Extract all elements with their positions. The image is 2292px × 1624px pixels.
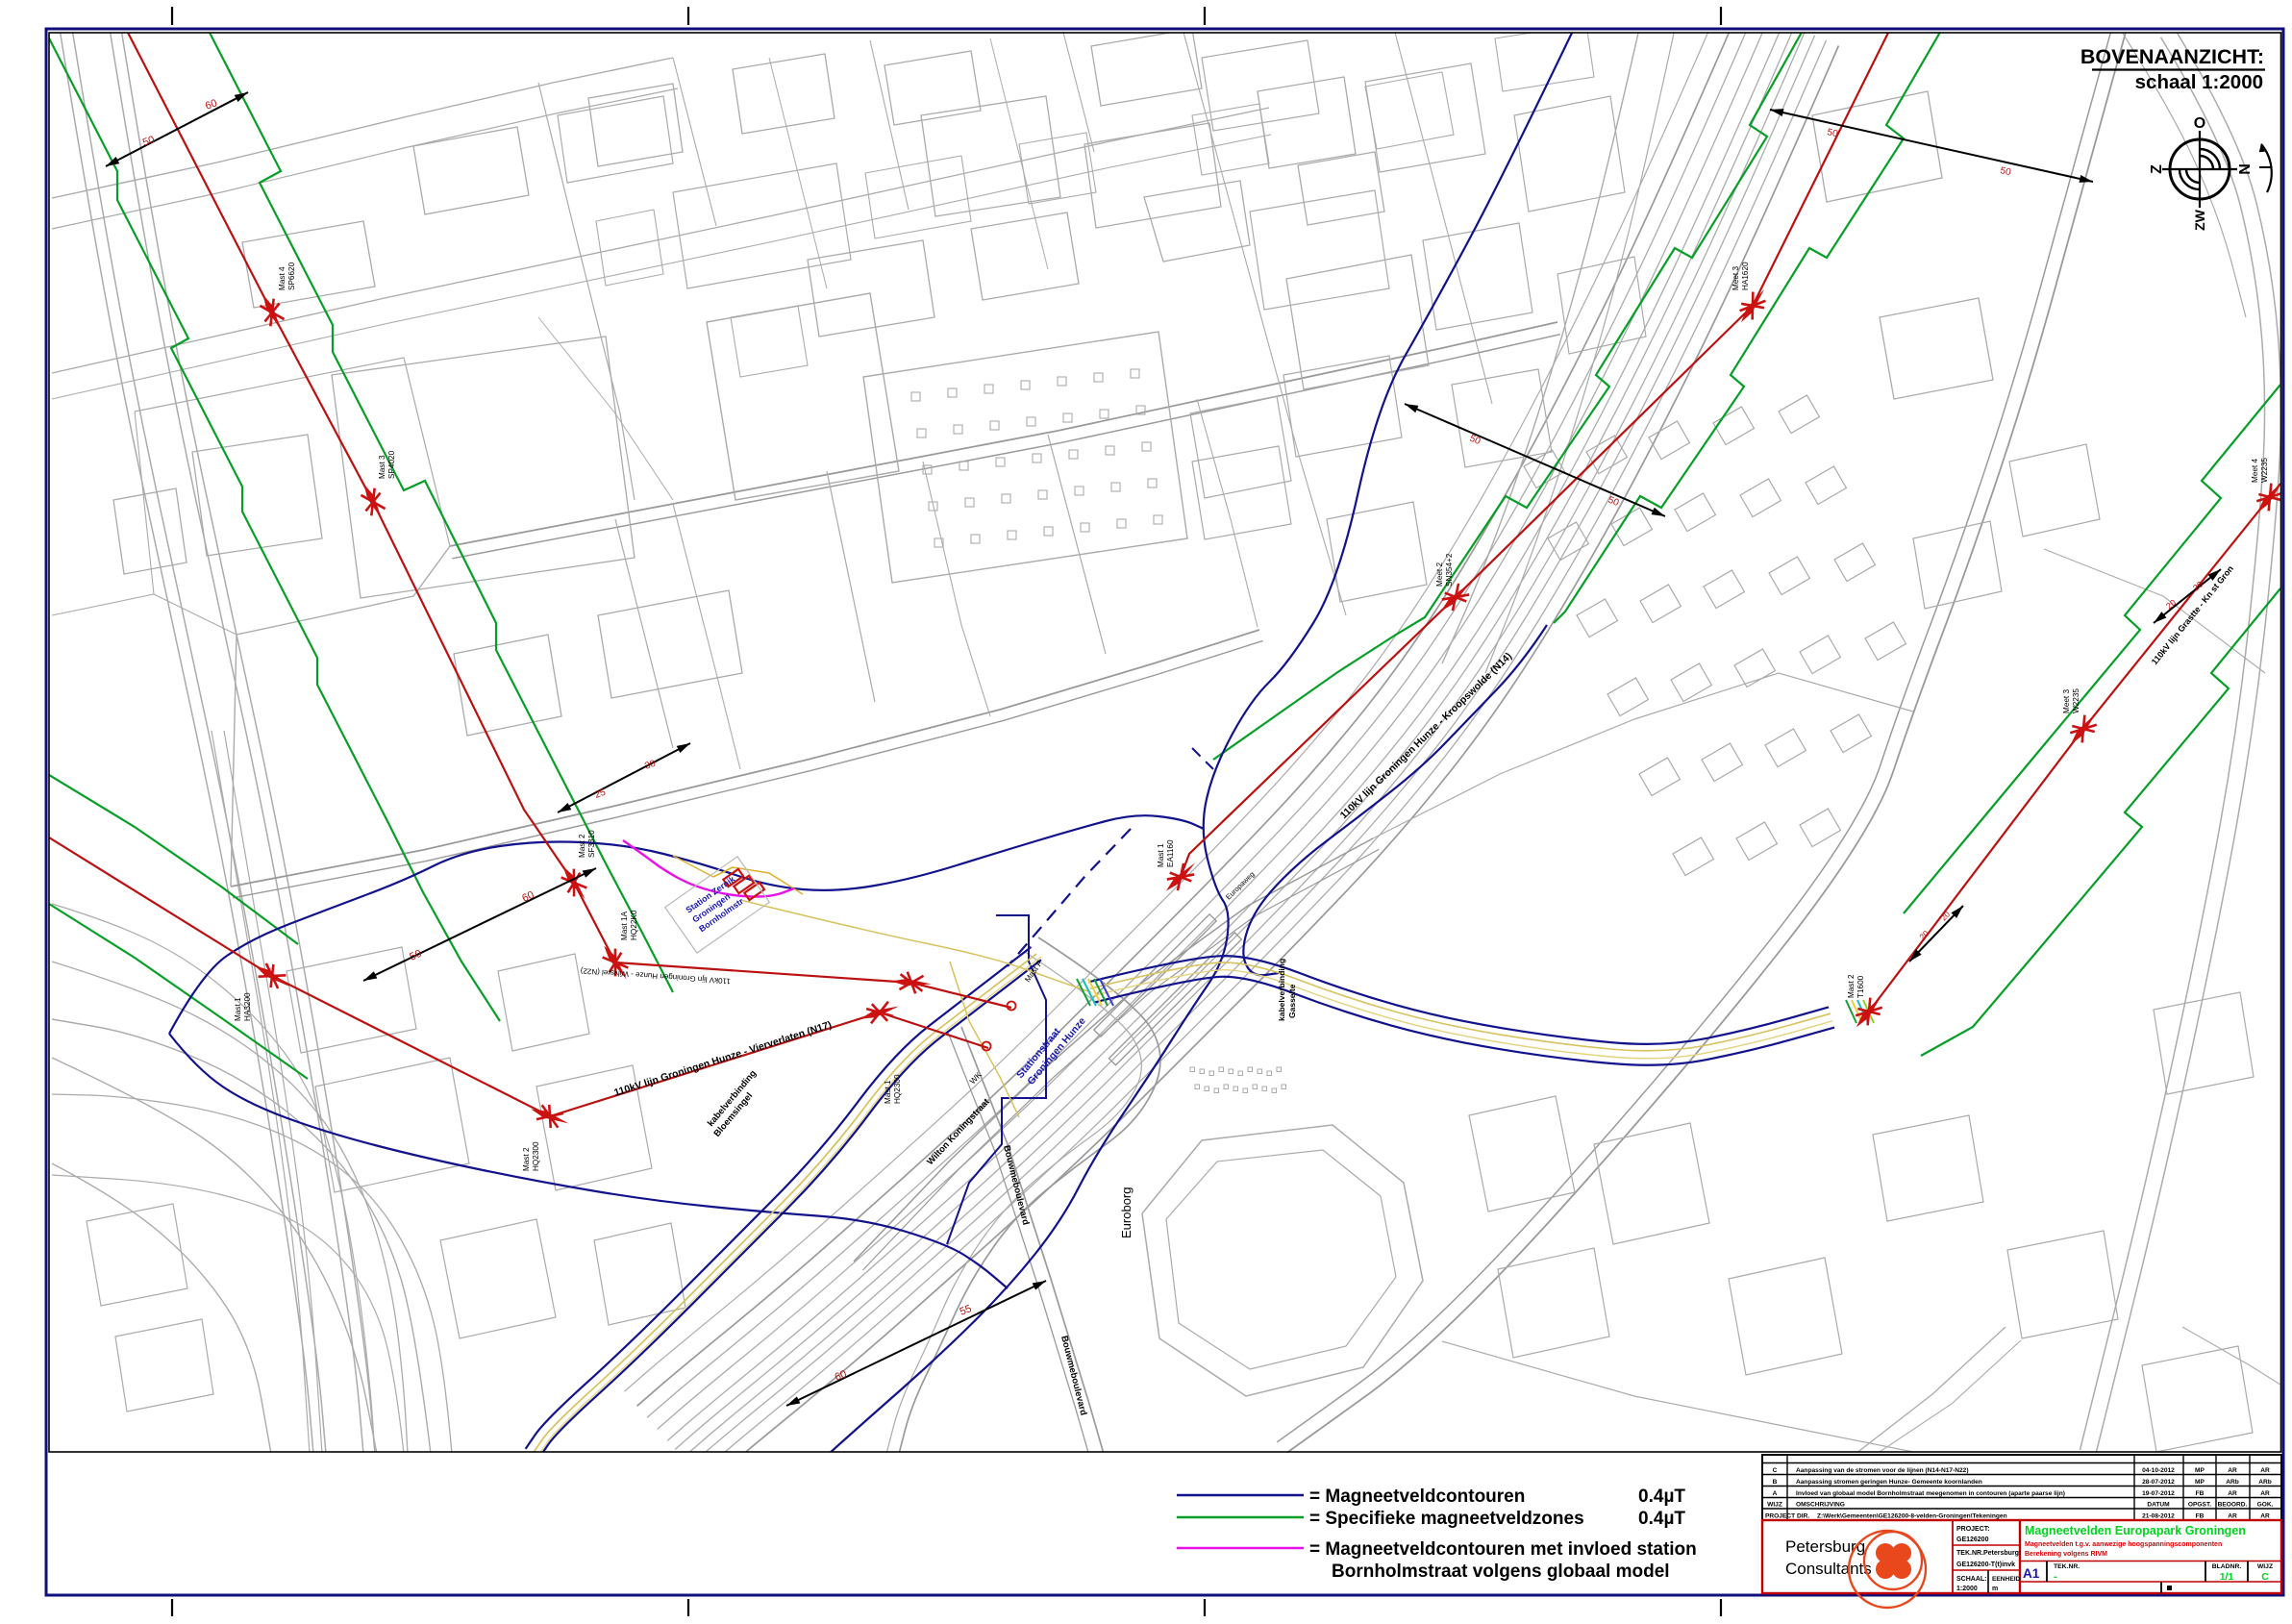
svg-text:Mast 1: Mast 1 xyxy=(884,1080,892,1104)
svg-text:SN354+2: SN354+2 xyxy=(1445,553,1454,587)
svg-text:Mast 2: Mast 2 xyxy=(1847,974,1856,998)
svg-text:W2235: W2235 xyxy=(2260,458,2269,483)
svg-text:1/1: 1/1 xyxy=(2220,1571,2234,1583)
svg-text:AR: AR xyxy=(2228,1513,2237,1520)
svg-text:m: m xyxy=(1992,1586,1998,1592)
svg-text:AR: AR xyxy=(2260,1467,2270,1474)
svg-text:C: C xyxy=(1773,1467,1778,1474)
svg-text:EA1160: EA1160 xyxy=(1166,839,1175,867)
svg-text:= Magneetveldcontouren met inv: = Magneetveldcontouren met invloed stati… xyxy=(1309,1539,1697,1560)
svg-text:WIJZ: WIJZ xyxy=(2257,1563,2273,1570)
svg-text:0.4µT: 0.4µT xyxy=(1638,1509,1685,1529)
svg-text:Mast 2: Mast 2 xyxy=(578,834,586,858)
svg-text:DATUM: DATUM xyxy=(2147,1502,2170,1509)
svg-text:AR: AR xyxy=(2228,1490,2237,1497)
svg-text:HQ2300: HQ2300 xyxy=(532,1141,540,1171)
svg-text:-: - xyxy=(2054,1571,2057,1583)
svg-text:GE126200-T(t)invk: GE126200-T(t)invk xyxy=(1956,1562,2015,1568)
svg-text:W2235: W2235 xyxy=(2072,688,2080,713)
svg-text:Magneetvelden Europapark Groni: Magneetvelden Europapark Groningen xyxy=(2025,1524,2246,1537)
svg-text:SP4020: SP4020 xyxy=(387,450,396,479)
svg-text:TEK.NR.Petersburg:: TEK.NR.Petersburg: xyxy=(1956,1550,2021,1557)
svg-text:Mast 1: Mast 1 xyxy=(1157,843,1165,867)
svg-text:Z: Z xyxy=(2149,164,2165,174)
svg-text:TEK.NR.: TEK.NR. xyxy=(2054,1563,2080,1570)
svg-text:AR: AR xyxy=(2260,1513,2270,1520)
svg-text:Mast 2: Mast 2 xyxy=(522,1147,531,1171)
svg-text:O: O xyxy=(2194,115,2205,132)
svg-text:GOK.: GOK. xyxy=(2257,1502,2274,1509)
svg-text:Invloed van globaal model Born: Invloed van globaal model Bornholmstraat… xyxy=(1796,1490,2065,1497)
svg-text:21-08-2012: 21-08-2012 xyxy=(2142,1513,2175,1520)
svg-text:Mast 1: Mast 1 xyxy=(234,997,242,1021)
svg-text:Meet 2: Meet 2 xyxy=(1435,562,1444,587)
svg-text:HQ2300: HQ2300 xyxy=(893,1074,902,1104)
svg-text:MP: MP xyxy=(2195,1467,2205,1474)
svg-text:0.4µT: 0.4µT xyxy=(1638,1487,1685,1507)
svg-text:ZW: ZW xyxy=(2192,209,2207,231)
svg-text:AR: AR xyxy=(2260,1490,2270,1497)
svg-text:= Specifieke magneetveldzones: = Specifieke magneetveldzones xyxy=(1309,1509,1584,1529)
svg-text:Mast 4: Mast 4 xyxy=(278,266,286,290)
svg-text:28-07-2012: 28-07-2012 xyxy=(2142,1479,2175,1486)
svg-text:N: N xyxy=(2237,163,2254,175)
svg-text:Meet 3: Meet 3 xyxy=(2062,689,2071,713)
svg-text:BEOORD.: BEOORD. xyxy=(2218,1502,2248,1509)
svg-text:FB: FB xyxy=(2196,1513,2205,1520)
svg-text:EENHEID: EENHEID xyxy=(1992,1576,2021,1583)
svg-text:Magneetvelden t.g.v. aanwezige: Magneetvelden t.g.v. aanwezige hoogspann… xyxy=(2025,1541,2222,1548)
svg-text:HA3200: HA3200 xyxy=(243,992,252,1021)
svg-text:PROJECT:: PROJECT: xyxy=(1956,1526,1990,1533)
svg-text:HA1620: HA1620 xyxy=(1741,262,1750,290)
svg-text:BLADNR.: BLADNR. xyxy=(2212,1563,2242,1570)
svg-text:T1600: T1600 xyxy=(1856,975,1865,998)
svg-text:Bornholmstraat volgens globaal: Bornholmstraat volgens globaal model xyxy=(1332,1562,1670,1582)
svg-text:ARb: ARb xyxy=(2258,1479,2272,1486)
svg-text:Mast 1A: Mast 1A xyxy=(620,911,629,940)
svg-text:SP6620: SP6620 xyxy=(287,262,296,290)
svg-text:19-07-2012: 19-07-2012 xyxy=(2142,1490,2175,1497)
svg-text:GE126200: GE126200 xyxy=(1956,1537,1989,1543)
svg-text:FB: FB xyxy=(2196,1490,2205,1497)
svg-text:Meet 4: Meet 4 xyxy=(2251,459,2259,483)
svg-text:Euroborg: Euroborg xyxy=(1119,1187,1134,1238)
svg-text:HQ22K0: HQ22K0 xyxy=(630,910,638,940)
svg-text:Aanpassing van de stromen voor: Aanpassing van de stromen voor de lijnen… xyxy=(1796,1467,1969,1474)
svg-text:SF3310: SF3310 xyxy=(587,830,596,858)
svg-text:Z:\Werk\Gemeenten\GE126200-8-v: Z:\Werk\Gemeenten\GE126200-8-velden-Gron… xyxy=(1817,1513,2007,1520)
svg-text:MP: MP xyxy=(2195,1479,2205,1486)
svg-text:PROJECT DIR.: PROJECT DIR. xyxy=(1765,1513,1809,1520)
svg-text:Berekening volgens RIVM: Berekening volgens RIVM xyxy=(2025,1551,2107,1558)
svg-text:B: B xyxy=(1773,1479,1778,1486)
svg-text:A1: A1 xyxy=(2023,1566,2040,1581)
svg-text:= Magneetveldcontouren: = Magneetveldcontouren xyxy=(1309,1487,1525,1507)
svg-text:kabelverbinding: kabelverbinding xyxy=(1277,959,1286,1021)
svg-text:Meet 3: Meet 3 xyxy=(1731,266,1740,290)
svg-text:C: C xyxy=(2261,1571,2269,1583)
svg-text:OMSCHRIJVING: OMSCHRIJVING xyxy=(1796,1502,1845,1509)
svg-text:schaal 1:2000: schaal 1:2000 xyxy=(2135,71,2263,93)
svg-text:1:2000: 1:2000 xyxy=(1956,1586,1978,1592)
svg-text:WIJZ: WIJZ xyxy=(1767,1502,1782,1509)
svg-text:A: A xyxy=(1773,1490,1778,1497)
svg-text:BOVENAANZICHT:: BOVENAANZICHT: xyxy=(2080,45,2264,68)
svg-text:OPGST.: OPGST. xyxy=(2188,1502,2211,1509)
svg-text:Aanpassing stromen geringen Hu: Aanpassing stromen geringen Hunze- Gemee… xyxy=(1796,1479,1982,1486)
svg-text:04-10-2012: 04-10-2012 xyxy=(2142,1467,2175,1474)
svg-text:ARb: ARb xyxy=(2226,1479,2239,1486)
svg-text:SCHAAL:: SCHAAL: xyxy=(1956,1576,1987,1583)
svg-text:AR: AR xyxy=(2228,1467,2237,1474)
svg-text:Mast 3: Mast 3 xyxy=(378,455,386,479)
svg-text:Gasselte: Gasselte xyxy=(1287,984,1297,1018)
